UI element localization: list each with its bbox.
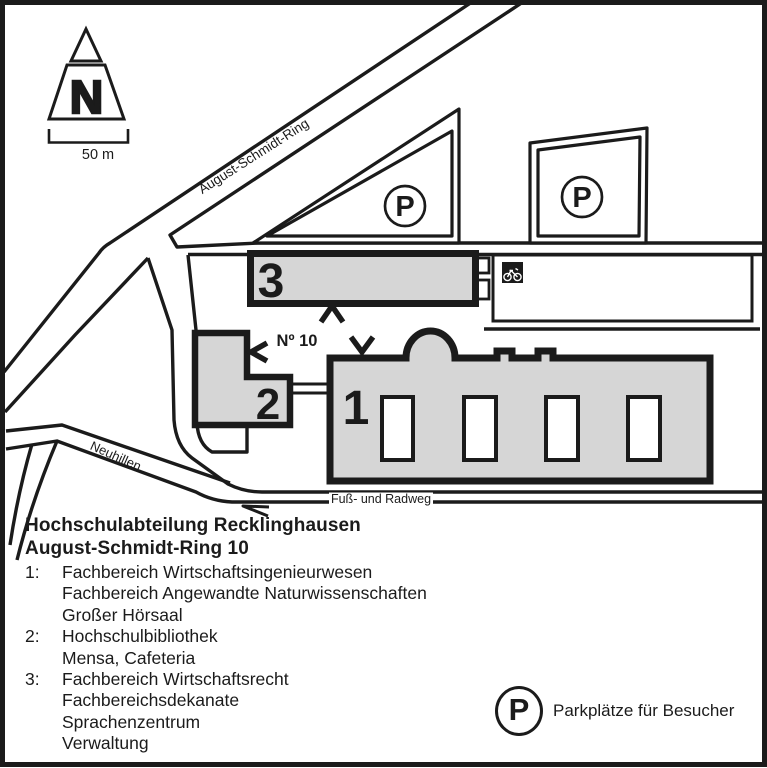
- entrance-arrow-down-icon: [351, 337, 373, 352]
- building-2-label: 2: [256, 380, 280, 429]
- legend-entry-lines: Fachbereich Wirtschaftsingenieurwesen Fa…: [62, 562, 427, 626]
- north-arrow-icon: N: [49, 29, 124, 123]
- courtyard-1: [382, 397, 413, 460]
- bike-parking-area: [493, 255, 752, 321]
- legend-entry-number: 2:: [25, 626, 62, 669]
- building-1: 1: [330, 331, 710, 481]
- parking-legend: P Parkplätze für Besucher: [495, 686, 734, 736]
- scale-bar: 50 m: [49, 129, 128, 163]
- legend-line: Fachbereichsdekanate: [62, 690, 289, 711]
- campus-map: P P 3 2 1: [0, 0, 767, 768]
- entrance-arrow-left-icon: [251, 343, 267, 361]
- parking-legend-label: Parkplätze für Besucher: [553, 701, 734, 721]
- legend-entry-lines: Fachbereich Wirtschaftsrecht Fachbereich…: [62, 669, 289, 755]
- north-letter: N: [70, 71, 103, 123]
- legend-line: Sprachenzentrum: [62, 712, 289, 733]
- legend-line: Hochschulbibliothek: [62, 626, 218, 647]
- legend-line: Verwaltung: [62, 733, 289, 754]
- street-label-august: August-Schmidt-Ring: [196, 116, 312, 197]
- parking-letter: P: [395, 191, 414, 223]
- parking-lot-east: P: [530, 128, 647, 243]
- legend-line: Fachbereich Wirtschaftsrecht: [62, 669, 289, 690]
- street-label-radweg: Fuß- und Radweg: [331, 492, 431, 506]
- courtyard-2: [464, 397, 496, 460]
- courtyard-4: [628, 397, 660, 460]
- legend: Hochschulabteilung Recklinghausen August…: [25, 514, 465, 755]
- legend-line: Mensa, Cafeteria: [62, 648, 218, 669]
- legend-entry-number: 1:: [25, 562, 62, 626]
- building-3-label: 3: [258, 255, 285, 308]
- legend-title: Hochschulabteilung Recklinghausen: [25, 514, 465, 537]
- legend-entries: 1: Fachbereich Wirtschaftsingenieurwesen…: [25, 562, 465, 755]
- legend-line: Fachbereich Wirtschaftsingenieurwesen: [62, 562, 427, 583]
- road-august-lower: [170, 2, 762, 247]
- entrance-arrow-up-icon: [321, 306, 343, 322]
- legend-entry-1: 1: Fachbereich Wirtschaftsingenieurwesen…: [25, 562, 465, 626]
- parking-letter: P: [572, 182, 591, 214]
- house-number-label: Nº 10: [277, 332, 318, 350]
- legend-entry-number: 3:: [25, 669, 62, 755]
- parking-legend-icon: P: [495, 686, 543, 736]
- walkway-connector: [290, 384, 332, 393]
- building-3: 3: [251, 254, 476, 309]
- building-1-label: 1: [343, 382, 370, 435]
- legend-entry-3: 3: Fachbereich Wirtschaftsrecht Fachbere…: [25, 669, 465, 755]
- legend-entry-2: 2: Hochschulbibliothek Mensa, Cafeteria: [25, 626, 465, 669]
- courtyard-3: [546, 397, 578, 460]
- legend-line: Großer Hörsaal: [62, 605, 427, 626]
- legend-subtitle: August-Schmidt-Ring 10: [25, 537, 465, 560]
- bike-area-outline: [493, 255, 752, 321]
- legend-entry-lines: Hochschulbibliothek Mensa, Cafeteria: [62, 626, 218, 669]
- legend-line: Fachbereich Angewandte Naturwissenschaft…: [62, 583, 427, 604]
- scale-label: 50 m: [82, 147, 114, 163]
